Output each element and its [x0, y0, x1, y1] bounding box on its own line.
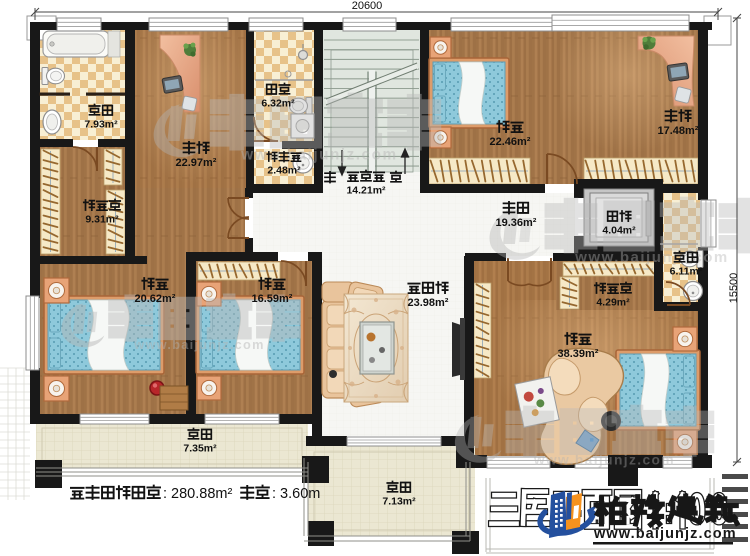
svg-text:7.93m²: 7.93m² — [84, 119, 118, 131]
svg-text:16.59m²: 16.59m² — [252, 293, 293, 305]
svg-text:4.04m²: 4.04m² — [602, 225, 636, 237]
svg-text:14.21m²: 14.21m² — [346, 185, 386, 197]
svg-text:6.32m²: 6.32m² — [261, 98, 295, 110]
svg-text:www.baijunjz.com: www.baijunjz.com — [533, 453, 675, 468]
svg-text:22.46m²: 22.46m² — [490, 136, 531, 148]
svg-text:: 3.60m: : 3.60m — [272, 486, 320, 502]
svg-text:22.97m²: 22.97m² — [176, 157, 217, 169]
svg-text:20600: 20600 — [352, 0, 383, 12]
svg-text:www.baijunjz.com: www.baijunjz.com — [133, 337, 264, 352]
svg-text:20.62m²: 20.62m² — [135, 293, 176, 305]
svg-text:6.11m²: 6.11m² — [670, 266, 703, 278]
svg-text:15500: 15500 — [728, 273, 740, 304]
svg-text:17.48m²: 17.48m² — [658, 125, 699, 137]
svg-text:23.98m²: 23.98m² — [408, 297, 449, 309]
svg-text:www.baijunjz.com: www.baijunjz.com — [593, 526, 737, 542]
svg-text:7.13m²: 7.13m² — [382, 496, 416, 508]
svg-text:9.31m²: 9.31m² — [85, 214, 119, 226]
svg-text:www.baijunjz.com: www.baijunjz.com — [574, 249, 728, 266]
svg-text:4.29m²: 4.29m² — [596, 297, 630, 309]
svg-text:19.36m²: 19.36m² — [496, 217, 537, 229]
svg-text:7.35m²: 7.35m² — [183, 443, 217, 455]
svg-text:: 280.88m²: : 280.88m² — [163, 486, 232, 502]
svg-text:2.48m²: 2.48m² — [267, 165, 301, 177]
svg-text:www.baijunjz.com: www.baijunjz.com — [240, 146, 397, 163]
svg-text:38.39m²: 38.39m² — [558, 348, 599, 360]
